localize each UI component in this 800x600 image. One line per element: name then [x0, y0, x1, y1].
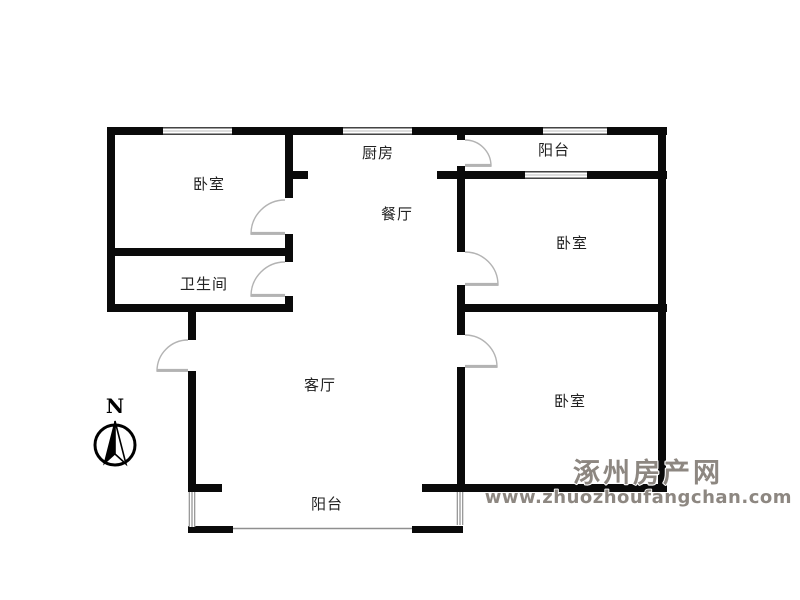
- north-compass: N: [95, 394, 135, 465]
- wall-bedroom1-right-a: [285, 127, 293, 198]
- room-label-dining-room: 餐厅: [381, 205, 413, 223]
- room-labels: 卧室 厨房 阳台 餐厅 卧室 卫生间 客厅 卧室 阳台: [180, 141, 588, 513]
- wall-balcony-corner-right: [412, 526, 463, 533]
- door-arc-kitchen-balcony: [465, 140, 491, 166]
- room-label-balcony-bottom: 阳台: [311, 495, 343, 513]
- watermark-site-url: www.zhuozhoufangchan.com: [485, 487, 792, 508]
- watermark-site-name: 涿州房产网: [573, 458, 723, 489]
- wall-kitchen-stub-left: [293, 171, 308, 179]
- wall-bedroom1-right-c: [285, 296, 293, 312]
- wall-bedroom1-right-b: [285, 234, 293, 262]
- room-label-bedroom-3: 卧室: [554, 392, 586, 410]
- wall-center-right-a: [457, 127, 465, 140]
- windows: [163, 128, 607, 528]
- floorplan-canvas: 卧室 厨房 阳台 餐厅 卧室 卫生间 客厅 卧室 阳台 N 涿州房产网 www.…: [0, 0, 800, 600]
- door-arc-entry: [157, 340, 188, 371]
- window-fills: [163, 128, 607, 527]
- wall-bedroom1-bottom: [107, 248, 293, 256]
- room-label-balcony-top: 阳台: [538, 141, 570, 159]
- door-arc-bedroom1: [251, 200, 285, 234]
- wall-center-right-d: [457, 367, 465, 492]
- wall-bathroom-bottom: [107, 304, 293, 312]
- wall-living-left-b: [188, 371, 196, 492]
- wall-outer-left: [107, 127, 115, 312]
- wall-bedroom2-bottom: [458, 304, 667, 312]
- room-label-bedroom-1: 卧室: [193, 175, 225, 193]
- door-arc-bedroom2: [465, 252, 498, 285]
- floorplan-page: 卧室 厨房 阳台 餐厅 卧室 卫生间 客厅 卧室 阳台 N 涿州房产网 www.…: [0, 0, 800, 600]
- wall-balcony-corner-left: [188, 526, 233, 533]
- room-label-kitchen: 厨房: [362, 144, 394, 162]
- wall-outer-right: [658, 127, 666, 492]
- wall-center-right-c: [457, 285, 465, 335]
- watermark: 涿州房产网 www.zhuozhoufangchan.com: [485, 458, 792, 508]
- door-arc-bedroom3: [465, 335, 497, 367]
- door-arc-bathroom: [251, 262, 285, 296]
- wall-living-left-a: [188, 312, 196, 340]
- room-label-bedroom-2: 卧室: [556, 234, 588, 252]
- wall-center-right-b: [457, 166, 465, 252]
- room-label-bathroom: 卫生间: [180, 275, 228, 293]
- compass-n-label: N: [106, 394, 124, 418]
- room-label-living-room: 客厅: [304, 376, 336, 394]
